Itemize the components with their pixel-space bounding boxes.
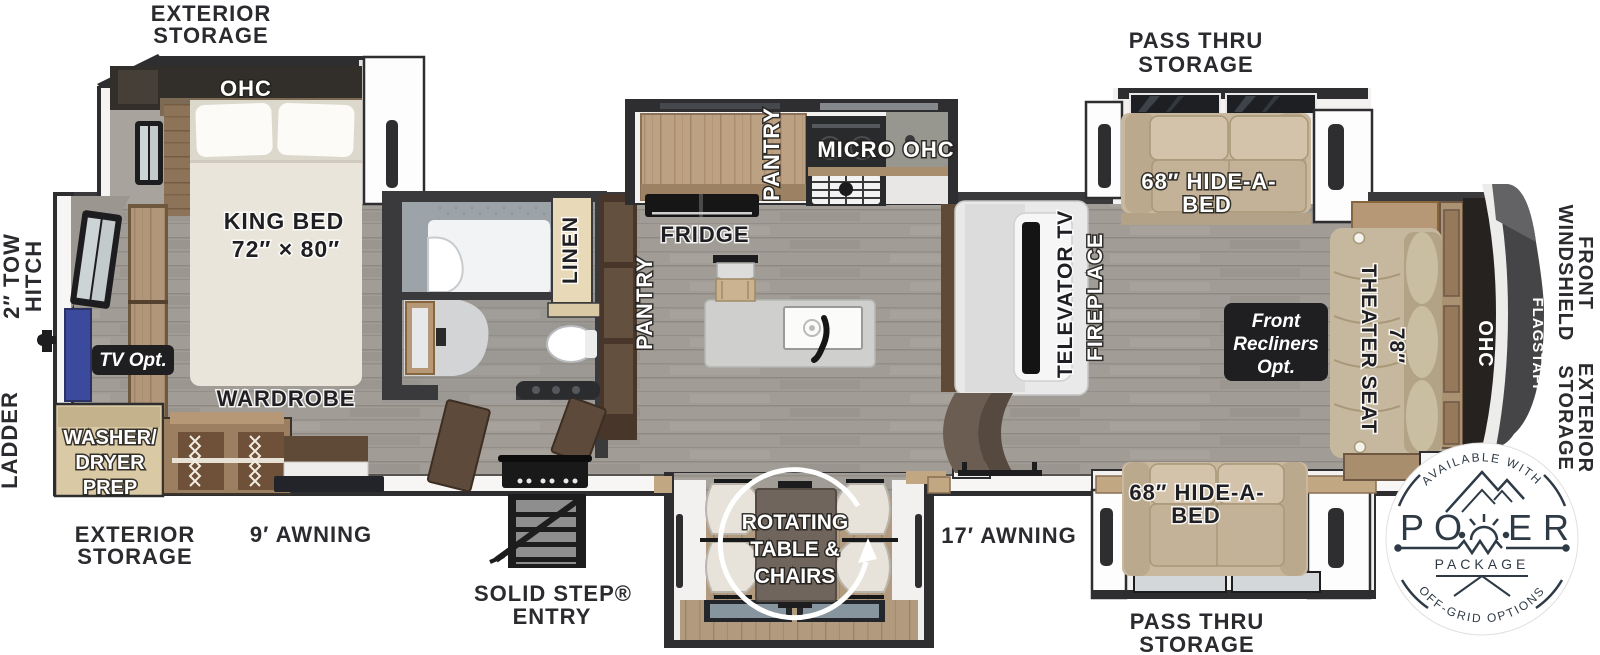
svg-text:TELEVATOR TV: TELEVATOR TV xyxy=(1054,210,1077,378)
svg-text:WASHER/: WASHER/ xyxy=(63,427,157,449)
svg-text:FIREPLACE: FIREPLACE xyxy=(1084,233,1107,361)
svg-text:LINEN: LINEN xyxy=(559,216,582,284)
svg-text:ENTRY: ENTRY xyxy=(513,604,592,629)
svg-text:STORAGE: STORAGE xyxy=(153,23,268,48)
svg-text:PASS THRU: PASS THRU xyxy=(1130,609,1265,634)
svg-text:HITCH: HITCH xyxy=(21,240,46,312)
svg-text:BED: BED xyxy=(1171,503,1220,528)
svg-text:68″ HIDE-A-: 68″ HIDE-A- xyxy=(1129,480,1264,505)
svg-text:TABLE &: TABLE & xyxy=(750,538,839,561)
svg-text:9′ AWNING: 9′ AWNING xyxy=(250,522,372,547)
svg-text:STORAGE: STORAGE xyxy=(1554,365,1576,471)
svg-text:72″ × 80″: 72″ × 80″ xyxy=(232,236,340,262)
svg-text:PASS THRU: PASS THRU xyxy=(1129,28,1264,53)
svg-text:PACKAGE: PACKAGE xyxy=(1435,556,1530,572)
svg-text:STORAGE: STORAGE xyxy=(1139,632,1254,655)
svg-text:17′ AWNING: 17′ AWNING xyxy=(941,523,1076,548)
svg-text:EXTERIOR: EXTERIOR xyxy=(1574,363,1596,473)
svg-text:E: E xyxy=(1508,507,1532,548)
svg-text:Front: Front xyxy=(1252,311,1301,332)
svg-text:CHAIRS: CHAIRS xyxy=(755,565,836,588)
svg-text:SOLID STEP®: SOLID STEP® xyxy=(474,581,632,606)
svg-text:THEATER SEAT: THEATER SEAT xyxy=(1357,264,1380,434)
svg-text:68″ HIDE-A-: 68″ HIDE-A- xyxy=(1141,169,1276,194)
svg-text:Opt.: Opt. xyxy=(1257,357,1295,378)
svg-text:78″: 78″ xyxy=(1385,328,1408,364)
svg-text:KING BED: KING BED xyxy=(224,208,344,234)
svg-text:P: P xyxy=(1400,507,1424,548)
svg-text:WARDROBE: WARDROBE xyxy=(217,386,356,411)
svg-text:DRYER: DRYER xyxy=(75,452,145,474)
svg-text:PREP: PREP xyxy=(83,477,137,499)
svg-text:OHC: OHC xyxy=(1474,320,1496,367)
svg-text:FLAGSTAFF: FLAGSTAFF xyxy=(1529,297,1546,394)
svg-text:PANTRY: PANTRY xyxy=(759,107,784,201)
svg-text:Recliners: Recliners xyxy=(1233,334,1319,355)
svg-text:PANTRY: PANTRY xyxy=(632,256,657,350)
svg-text:TV Opt.: TV Opt. xyxy=(99,350,167,371)
svg-text:FRONT: FRONT xyxy=(1574,236,1596,310)
svg-text:WINDSHIELD: WINDSHIELD xyxy=(1554,205,1576,342)
svg-text:STORAGE: STORAGE xyxy=(77,544,192,569)
svg-text:R: R xyxy=(1543,507,1569,548)
svg-text:STORAGE: STORAGE xyxy=(1138,52,1253,77)
svg-text:MICRO OHC: MICRO OHC xyxy=(817,137,954,162)
svg-text:OHC: OHC xyxy=(220,76,272,101)
svg-text:FRIDGE: FRIDGE xyxy=(660,222,749,247)
svg-text:ROTATING: ROTATING xyxy=(742,511,849,534)
svg-text:BED: BED xyxy=(1182,192,1231,217)
svg-text:LADDER: LADDER xyxy=(0,391,22,489)
svg-text:O: O xyxy=(1434,507,1462,548)
